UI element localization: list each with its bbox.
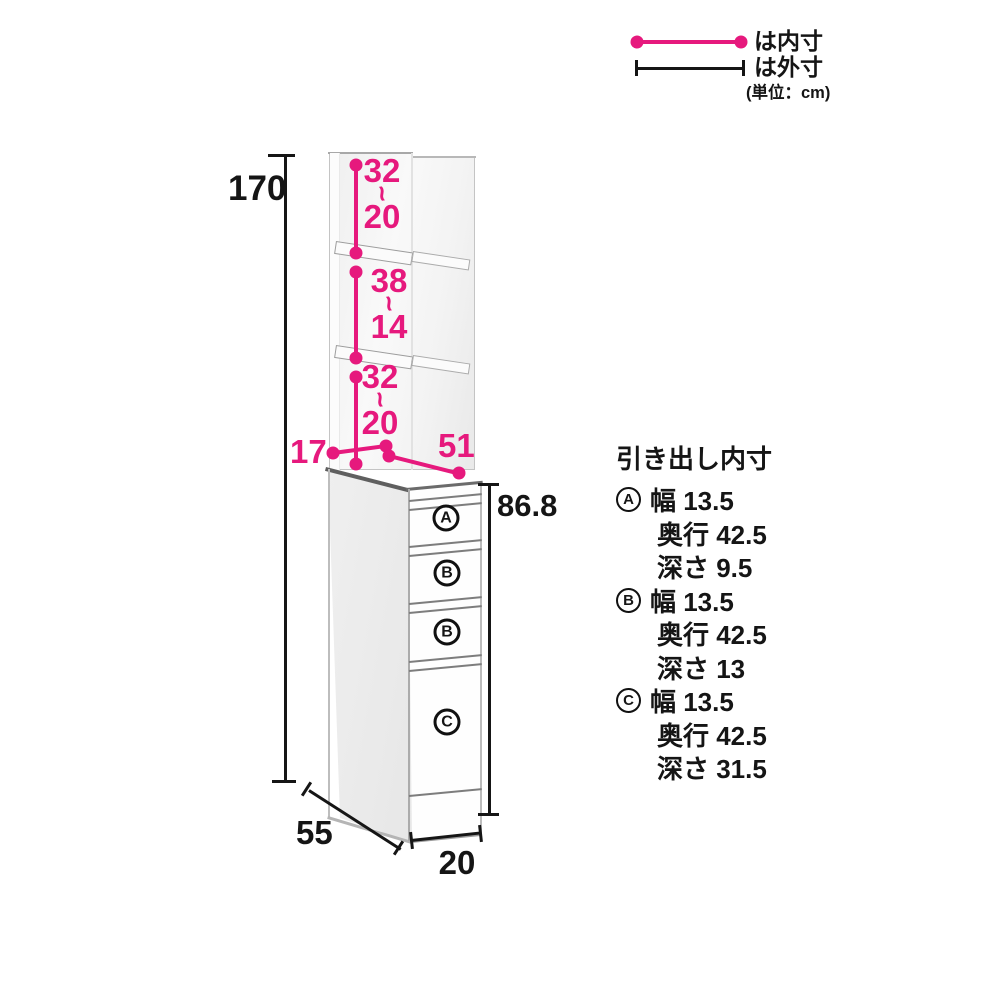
spec-a-height: 深さ 9.5 <box>657 548 752 585</box>
tilde-icon: ~ <box>370 390 390 409</box>
spec-row-b-depth: 奥行 42.5 <box>616 617 836 651</box>
inner-dim-1-dot-bottom <box>350 247 363 260</box>
spec-a-depth: 奥行 42.5 <box>657 515 767 552</box>
upper-depth-label: 17 <box>290 435 327 468</box>
spec-row-b-height: 深さ 13 <box>616 651 836 685</box>
drawer-b2-badge: B <box>434 619 461 646</box>
legend-outer-tick-right <box>742 60 745 76</box>
shelf-range-1-min: 20 <box>364 202 401 231</box>
cabinet-back-edge <box>328 469 330 818</box>
spec-a-badge: A <box>616 487 641 512</box>
total-height-line <box>284 155 287 782</box>
cabinet-side-panel <box>328 468 412 843</box>
shelf-range-label-2: 38 ~ 14 <box>369 266 409 341</box>
drawer-a-badge: A <box>433 505 460 532</box>
spec-row-b-width: B 幅 13.5 <box>616 584 836 618</box>
spec-b-height: 深さ 13 <box>657 649 745 686</box>
legend-outer-label: は外寸 <box>754 54 823 80</box>
total-height-label: 170 <box>228 172 278 205</box>
spec-row-c-width: C 幅 13.5 <box>616 684 836 718</box>
tilde-icon: ~ <box>372 184 392 203</box>
dimension-diagram: は内寸 は外寸 (単位：cm) 170 32 ~ 20 38 ~ 14 32 ~ <box>0 0 1000 1000</box>
counter-depth-dot-right <box>453 467 466 480</box>
total-height-tick-bottom <box>272 780 296 783</box>
shelf-range-2-min: 14 <box>371 312 408 341</box>
shelf-range-1-max: 32 <box>364 156 401 185</box>
cabinet-height-label: 86.8 <box>497 489 557 522</box>
legend-outer-tick-left <box>635 60 638 76</box>
spec-row-c-depth: 奥行 42.5 <box>616 718 836 752</box>
spec-a-width: 幅 13.5 <box>650 481 734 518</box>
counter-depth-label: 51 <box>438 429 475 462</box>
spec-b-badge: B <box>616 588 641 613</box>
legend-inner-dot-right <box>735 36 748 49</box>
cabinet-height-tick-bottom <box>478 813 499 816</box>
spec-row-c-height: 深さ 31.5 <box>616 751 836 785</box>
shelf-range-3-max: 32 <box>362 362 399 391</box>
drawer-c-badge: C <box>434 709 461 736</box>
legend-inner-dot-left <box>631 36 644 49</box>
inner-dim-1-dot-top <box>350 159 363 172</box>
spec-row-a-height: 深さ 9.5 <box>616 550 836 584</box>
shelf-range-3-min: 20 <box>362 408 399 437</box>
spec-b-width: 幅 13.5 <box>650 582 734 619</box>
spec-c-depth: 奥行 42.5 <box>657 716 767 753</box>
cabinet-height-line <box>488 484 491 815</box>
upper-depth-dot-left <box>327 447 340 460</box>
legend-inner-label: は内寸 <box>754 28 823 54</box>
shelf-range-label-3: 32 ~ 20 <box>360 362 400 437</box>
spec-c-badge: C <box>616 688 641 713</box>
spec-row-a-depth: 奥行 42.5 <box>616 517 836 551</box>
drawer-b1-badge: B <box>434 560 461 587</box>
legend-outer-line <box>636 67 743 70</box>
inner-dim-line-2 <box>354 272 358 358</box>
tilde-icon: ~ <box>379 294 399 313</box>
inner-dim-line-1 <box>354 165 358 253</box>
spec-c-height: 深さ 31.5 <box>657 749 767 786</box>
legend-inner-line <box>637 40 741 44</box>
shelf-unit-corner-line <box>411 153 413 470</box>
spec-b-depth: 奥行 42.5 <box>657 615 767 652</box>
shelf-range-2-max: 38 <box>371 266 408 295</box>
spec-row-a-width: A 幅 13.5 <box>616 483 836 517</box>
shelf-unit-top-edge-back <box>412 156 476 158</box>
width-label: 20 <box>436 846 478 879</box>
total-height-tick-top <box>268 154 295 157</box>
inner-dim-3-dot-bottom <box>350 458 363 471</box>
legend-unit-note: (単位：cm) <box>746 84 830 102</box>
front-left-edge <box>408 489 410 841</box>
shelf-unit-side-strip <box>330 153 340 470</box>
shelf-range-label-1: 32 ~ 20 <box>362 156 402 231</box>
drawer-spec-list: 引き出し内寸 A 幅 13.5 奥行 42.5 深さ 9.5 B 幅 13.5 … <box>616 444 836 785</box>
inner-dim-2-dot-top <box>350 266 363 279</box>
front-right-edge <box>480 483 482 834</box>
drawer-spec-title: 引き出し内寸 <box>616 444 836 474</box>
counter-depth-dot-left <box>383 450 396 463</box>
depth-label: 55 <box>296 816 333 849</box>
spec-c-width: 幅 13.5 <box>650 682 734 719</box>
